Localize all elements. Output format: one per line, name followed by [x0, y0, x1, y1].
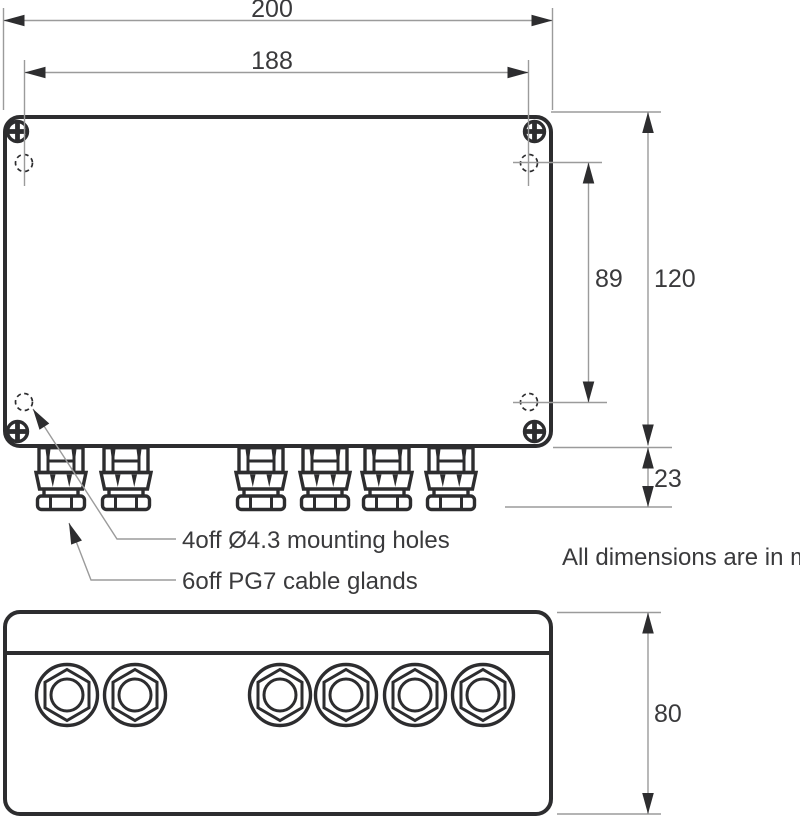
enclosure-top-outline	[5, 117, 551, 446]
leader-arrow-icon	[69, 523, 176, 580]
technical-drawing: 200 188 89 120 23 4off Ø4.3 mounting hol…	[0, 0, 800, 820]
cable-gland-top-icon	[362, 448, 412, 510]
callout-cable-glands-text: 6off PG7 cable glands	[182, 568, 418, 595]
screw-icon	[8, 422, 28, 442]
cable-gland-front-icon	[105, 665, 166, 726]
cable-gland-top-icon	[101, 448, 151, 510]
screw-icon	[525, 122, 545, 142]
dim-hole-spacing-width-value: 188	[251, 47, 293, 75]
dim-overall-width-value: 200	[251, 0, 293, 23]
drawing-canvas: 200 188 89 120 23 4off Ø4.3 mounting hol…	[0, 0, 800, 820]
screw-icon	[525, 422, 545, 442]
cable-gland-top-icon	[426, 448, 476, 510]
cable-gland-front-icon	[316, 665, 377, 726]
cable-gland-front-icon	[37, 665, 98, 726]
front-view	[5, 612, 551, 814]
dim-front-height: 80	[557, 613, 682, 815]
cable-gland-front-icon	[453, 665, 514, 726]
units-note: All dimensions are in mm	[562, 544, 800, 571]
cable-gland-top-icon	[236, 448, 286, 510]
top-view	[5, 117, 551, 510]
dim-gland-protrusion: 23	[505, 448, 682, 508]
dim-overall-depth-value: 120	[654, 265, 696, 293]
dim-hole-spacing-depth-value: 89	[595, 265, 623, 293]
cable-gland-front-icon	[385, 665, 446, 726]
cable-gland-front-icon	[250, 665, 311, 726]
callout-mounting-holes-text: 4off Ø4.3 mounting holes	[182, 527, 450, 554]
dim-front-height-value: 80	[654, 700, 682, 728]
cable-gland-top-icon	[300, 448, 350, 510]
dim-gland-protrusion-value: 23	[654, 465, 682, 493]
